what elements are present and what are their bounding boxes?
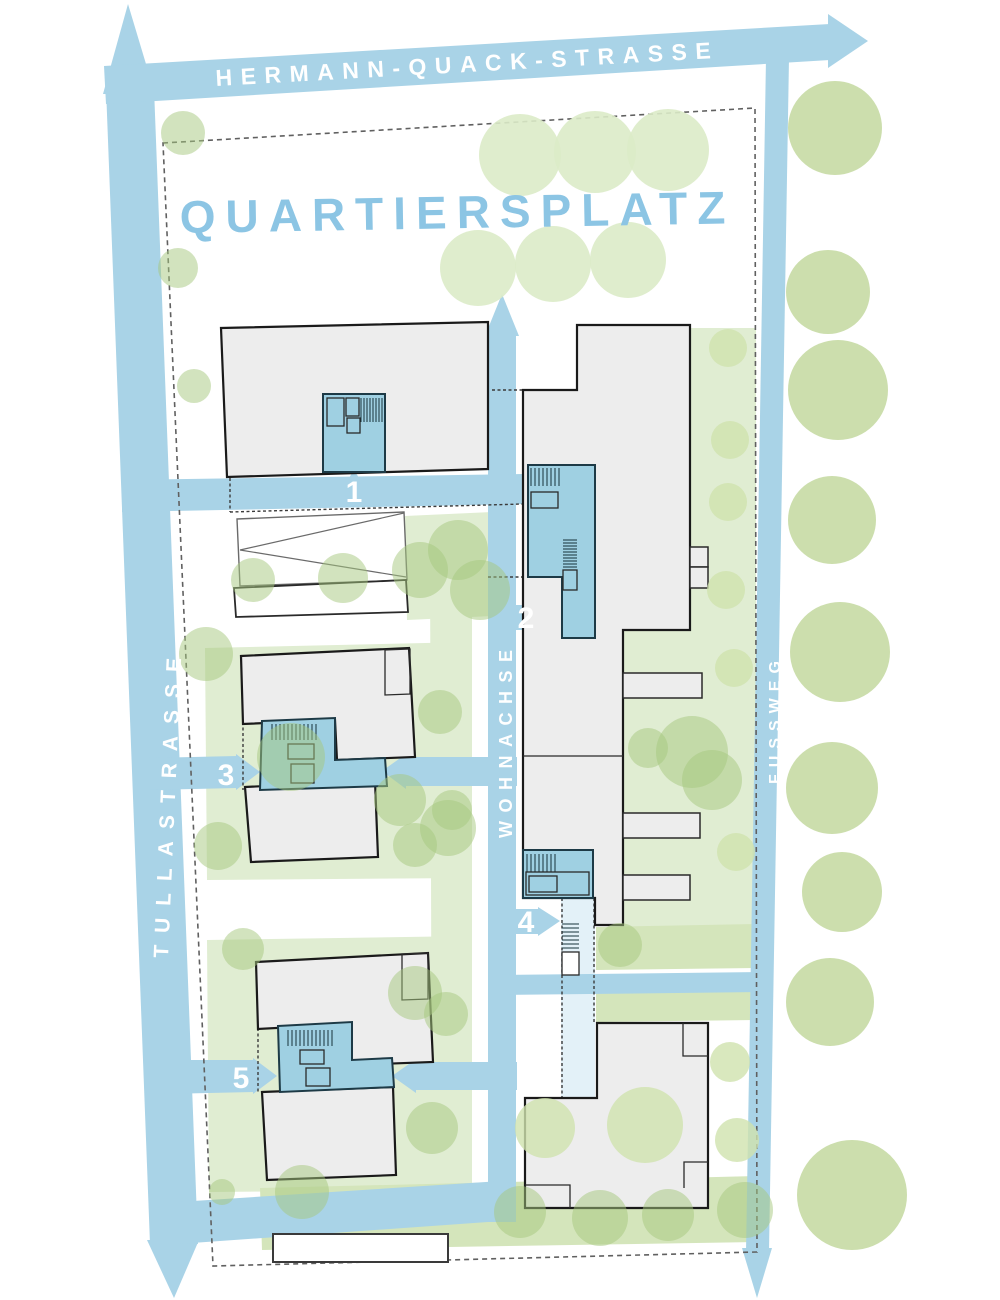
hermann-arrow-right-icon: [828, 14, 868, 68]
route-4-arrow-icon: [538, 907, 560, 936]
pedestrian-corridor: [561, 896, 595, 1100]
entrance-marker-5: 5: [233, 1062, 250, 1095]
building-3-south: [245, 781, 378, 862]
fussweg-arrow-down-icon: [742, 1248, 772, 1298]
entrance-marker-1: 1: [346, 476, 363, 509]
tullastrasse-arrow-down-icon: [147, 1240, 199, 1298]
street-label-fussweg: FUSSWEG: [767, 654, 784, 784]
street-label-wohnachse: WOHNACHSE: [496, 642, 516, 839]
entrance-marker-3: 3: [218, 759, 235, 792]
plaza-label: QUARTIERSPLATZ: [179, 181, 736, 243]
site-plan: HERMANN-QUACK-STRASSE QUARTIERSPLATZ TUL…: [0, 0, 1000, 1300]
entrance-marker-4: 4: [518, 906, 535, 939]
bottom-structure: [273, 1234, 448, 1262]
building-5-south: [262, 1087, 396, 1180]
entrance-marker-2: 2: [518, 602, 535, 635]
core-building-4: [523, 850, 593, 898]
fussweg-tree-row: [786, 81, 907, 1250]
